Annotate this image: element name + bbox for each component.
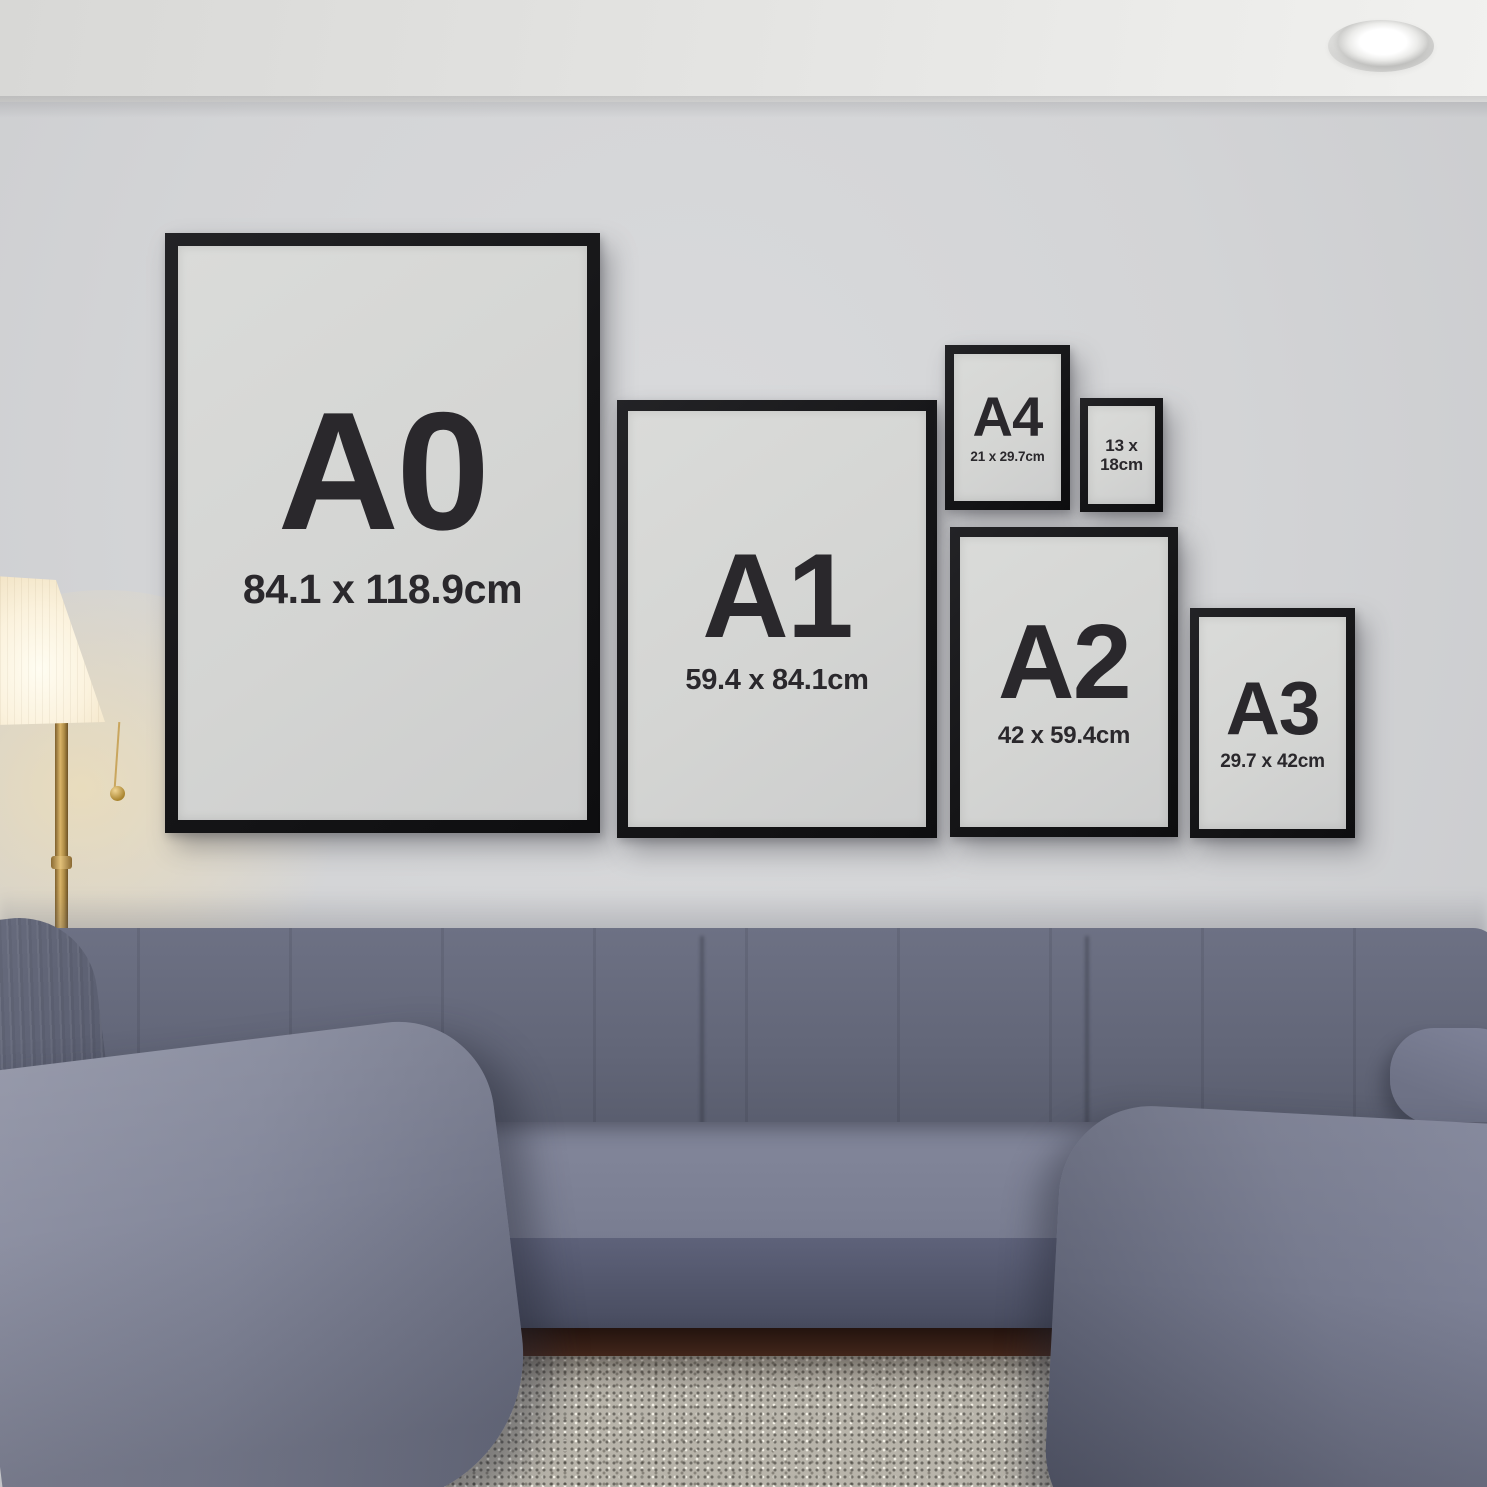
poster-a2: A2 42 x 59.4cm bbox=[960, 537, 1168, 827]
ceiling bbox=[0, 0, 1487, 102]
poster-13x18-dimensions-line2: 18cm bbox=[1100, 455, 1143, 474]
poster-a1: A1 59.4 x 84.1cm bbox=[628, 411, 926, 827]
recessed-ceiling-light bbox=[1328, 20, 1434, 72]
poster-a3-dimensions: 29.7 x 42cm bbox=[1220, 751, 1325, 772]
poster-frame-a2: A2 42 x 59.4cm bbox=[950, 527, 1178, 837]
poster-a4-label: A4 bbox=[973, 391, 1043, 443]
poster-13x18-dimensions: 13 x 18cm bbox=[1100, 436, 1143, 474]
poster-frame-13x18: 13 x 18cm bbox=[1080, 398, 1163, 512]
poster-a2-dimensions: 42 x 59.4cm bbox=[998, 723, 1130, 750]
poster-a3: A3 29.7 x 42cm bbox=[1199, 617, 1346, 829]
sofa-left-chaise bbox=[0, 1011, 540, 1487]
poster-a2-label: A2 bbox=[998, 614, 1130, 712]
poster-13x18-dimensions-line1: 13 x bbox=[1105, 436, 1137, 455]
sofa-right-arm-cushion bbox=[1390, 1028, 1487, 1124]
poster-frame-a3: A3 29.7 x 42cm bbox=[1190, 608, 1355, 838]
poster-a0-dimensions: 84.1 x 118.9cm bbox=[243, 567, 522, 613]
poster-frame-a4: A4 21 x 29.7cm bbox=[945, 345, 1070, 510]
poster-a3-label: A3 bbox=[1226, 674, 1320, 743]
lamp-pull-chain-ball bbox=[110, 786, 125, 801]
poster-a1-dimensions: 59.4 x 84.1cm bbox=[685, 664, 868, 696]
poster-a1-label: A1 bbox=[702, 541, 852, 651]
lamp-pole-collar bbox=[51, 856, 72, 869]
ceiling-wall-junction bbox=[0, 96, 1487, 118]
poster-frame-a1: A1 59.4 x 84.1cm bbox=[617, 400, 937, 838]
poster-a0-label: A0 bbox=[278, 394, 488, 549]
living-room-scene: A0 84.1 x 118.9cm A1 59.4 x 84.1cm A4 21… bbox=[0, 0, 1487, 1487]
poster-frame-a0: A0 84.1 x 118.9cm bbox=[165, 233, 600, 833]
poster-13x18: 13 x 18cm bbox=[1088, 406, 1155, 504]
poster-a4: A4 21 x 29.7cm bbox=[954, 354, 1061, 501]
poster-a4-dimensions: 21 x 29.7cm bbox=[970, 449, 1044, 464]
poster-a0: A0 84.1 x 118.9cm bbox=[178, 246, 587, 820]
sofa-right-chaise bbox=[1041, 1101, 1487, 1487]
